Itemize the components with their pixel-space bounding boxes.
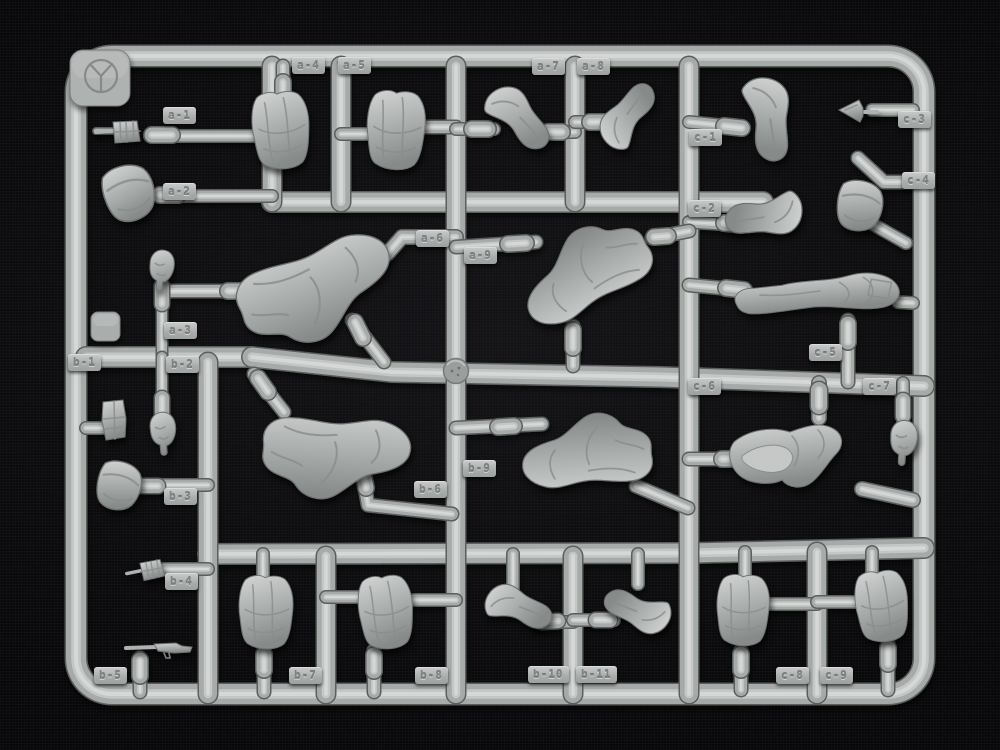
part-label-b-8: b-8	[415, 667, 448, 684]
part-label-b-4: b-4	[165, 573, 198, 590]
part-label-a-3: a-3	[164, 322, 197, 339]
part-c-6	[730, 425, 842, 487]
part-label-a-7: a-7	[532, 58, 565, 75]
part-label-b-10: b-10	[528, 666, 569, 683]
part-label-b-5: b-5	[94, 667, 127, 684]
part-b-2	[149, 411, 178, 456]
part-b-7	[238, 575, 295, 650]
part-a-9	[508, 209, 663, 332]
part-b-1	[102, 400, 126, 440]
part-label-b-9: b-9	[463, 460, 496, 477]
part-label-c-1: c-1	[689, 129, 722, 146]
part-c-2	[721, 171, 809, 256]
part-a-7	[481, 81, 550, 156]
part-label-c-9: c-9	[820, 667, 853, 684]
part-label-c-4: c-4	[902, 172, 935, 189]
part-b-8	[356, 574, 415, 651]
logo-y-icon	[70, 50, 130, 106]
part-c-8	[715, 574, 771, 647]
part-a-4	[250, 90, 311, 170]
part-label-a-5: a-5	[338, 57, 371, 74]
part-label-b-6: b-6	[414, 481, 447, 498]
part-label-a-2: a-2	[163, 183, 196, 200]
part-label-a-4: a-4	[292, 57, 325, 74]
part-label-c-3: c-3	[898, 111, 931, 128]
part-label-b-1: b-1	[68, 354, 101, 371]
sprue-graphic	[0, 0, 1000, 750]
part-label-a-6: a-6	[416, 230, 449, 247]
part-c-9	[853, 569, 911, 644]
part-a-6	[228, 228, 403, 355]
part-c-1	[720, 70, 812, 166]
part-a-2	[98, 160, 161, 227]
part-label-a-9: a-9	[464, 247, 497, 264]
part-label-c-6: c-6	[688, 378, 721, 395]
part-a-1	[96, 121, 140, 143]
part-label-b-2: b-2	[166, 356, 199, 373]
part-label-c-2: c-2	[688, 200, 721, 217]
part-b-3	[92, 457, 147, 515]
part-label-b-11: b-11	[576, 666, 617, 683]
part-label-c-8: c-8	[776, 667, 809, 684]
part-label-a-1: a-1	[163, 107, 196, 124]
part-label-c-5: c-5	[809, 344, 842, 361]
part-label-b-3: b-3	[164, 488, 197, 505]
part-label-a-8: a-8	[577, 58, 610, 75]
part-a-5	[364, 89, 427, 171]
ejector-pin-mark	[444, 359, 469, 384]
part-b-4	[125, 559, 165, 583]
blank-label-plate	[91, 312, 120, 341]
part-label-b-7: b-7	[289, 667, 322, 684]
part-label-c-7: c-7	[863, 378, 896, 395]
part-c-5	[734, 272, 900, 315]
sprue-photo: a-1 a-2 a-3 a-4 a-5 a-6 a-7 a-8 a-9 b-1 …	[0, 0, 1000, 750]
